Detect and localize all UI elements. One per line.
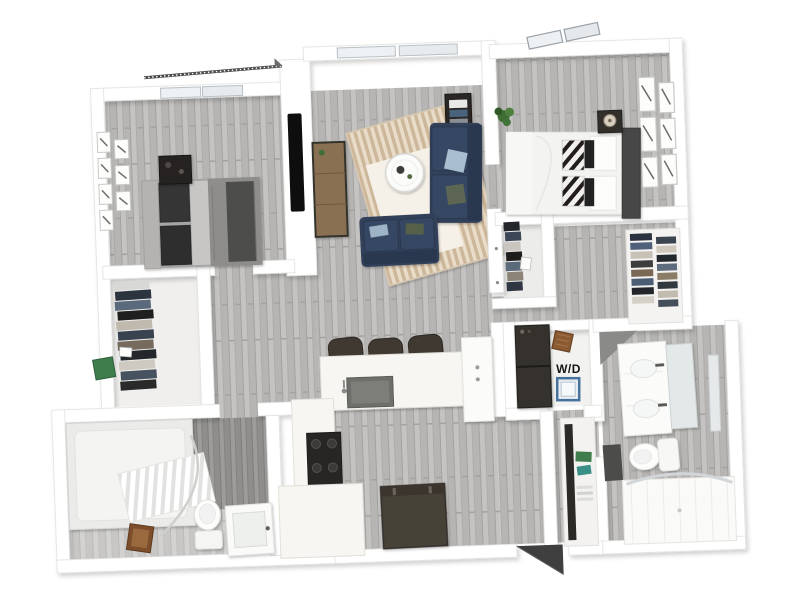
nightstand-2: [598, 110, 623, 133]
entry: [517, 544, 564, 576]
balcony-railing: [144, 58, 283, 78]
wd-label: W/D: [556, 362, 581, 376]
double-sink-vanity: [618, 339, 698, 436]
kitchen-counter-corner: [278, 483, 364, 558]
pillow-blue: [444, 149, 468, 173]
closet-photos: [119, 347, 132, 357]
hallway-1-floor: [205, 272, 320, 407]
vanity-mirror: [666, 343, 698, 429]
zebra-pillow: [562, 176, 584, 206]
bedroom-2-doorway: [485, 164, 501, 208]
bath-mat-1: [126, 524, 153, 553]
stacked-washer-dryer: [515, 325, 552, 408]
refrigerator: [381, 483, 448, 548]
pinned-photo: [520, 257, 531, 270]
linen-item-green: [575, 451, 591, 462]
bed-2-headboard: [622, 128, 640, 218]
floor-plan-svg: W/D: [0, 0, 800, 600]
sink-vanity-1: [225, 503, 274, 556]
bed-1: [142, 177, 263, 269]
hallway-2: [560, 417, 598, 546]
pillow-olive: [406, 223, 424, 235]
floor-plan-image: W/D: [0, 0, 800, 600]
tv-console: [312, 142, 347, 237]
nightstand-1: [159, 155, 192, 184]
storage-box: [93, 357, 116, 380]
sofa: [430, 123, 482, 223]
bed-1-headboard: [142, 180, 161, 269]
bed-1-pillow: [160, 225, 191, 265]
laundry-closet: W/D: [515, 324, 582, 408]
loveseat: [359, 213, 440, 267]
walk-in-shower: [622, 472, 736, 544]
zebra-pillow: [562, 140, 584, 170]
coffee-table: [385, 153, 424, 192]
kitchen-floor-ext: [496, 411, 545, 544]
bed-2: [506, 128, 640, 218]
laundry-basket: [552, 331, 573, 352]
leaning-mirror: [708, 355, 721, 431]
bed-1-pillow: [159, 182, 190, 222]
tall-cabinet: [461, 337, 494, 422]
bed-1-throw: [226, 181, 257, 262]
kitchen-island: [320, 352, 474, 411]
bathroom-1-doorway: [219, 402, 258, 418]
washer-top: [557, 378, 579, 400]
bath-mat-2: [603, 444, 623, 481]
stove: [307, 432, 343, 485]
walk-in-closet-2: [626, 228, 683, 324]
pillow-olive: [446, 184, 466, 205]
